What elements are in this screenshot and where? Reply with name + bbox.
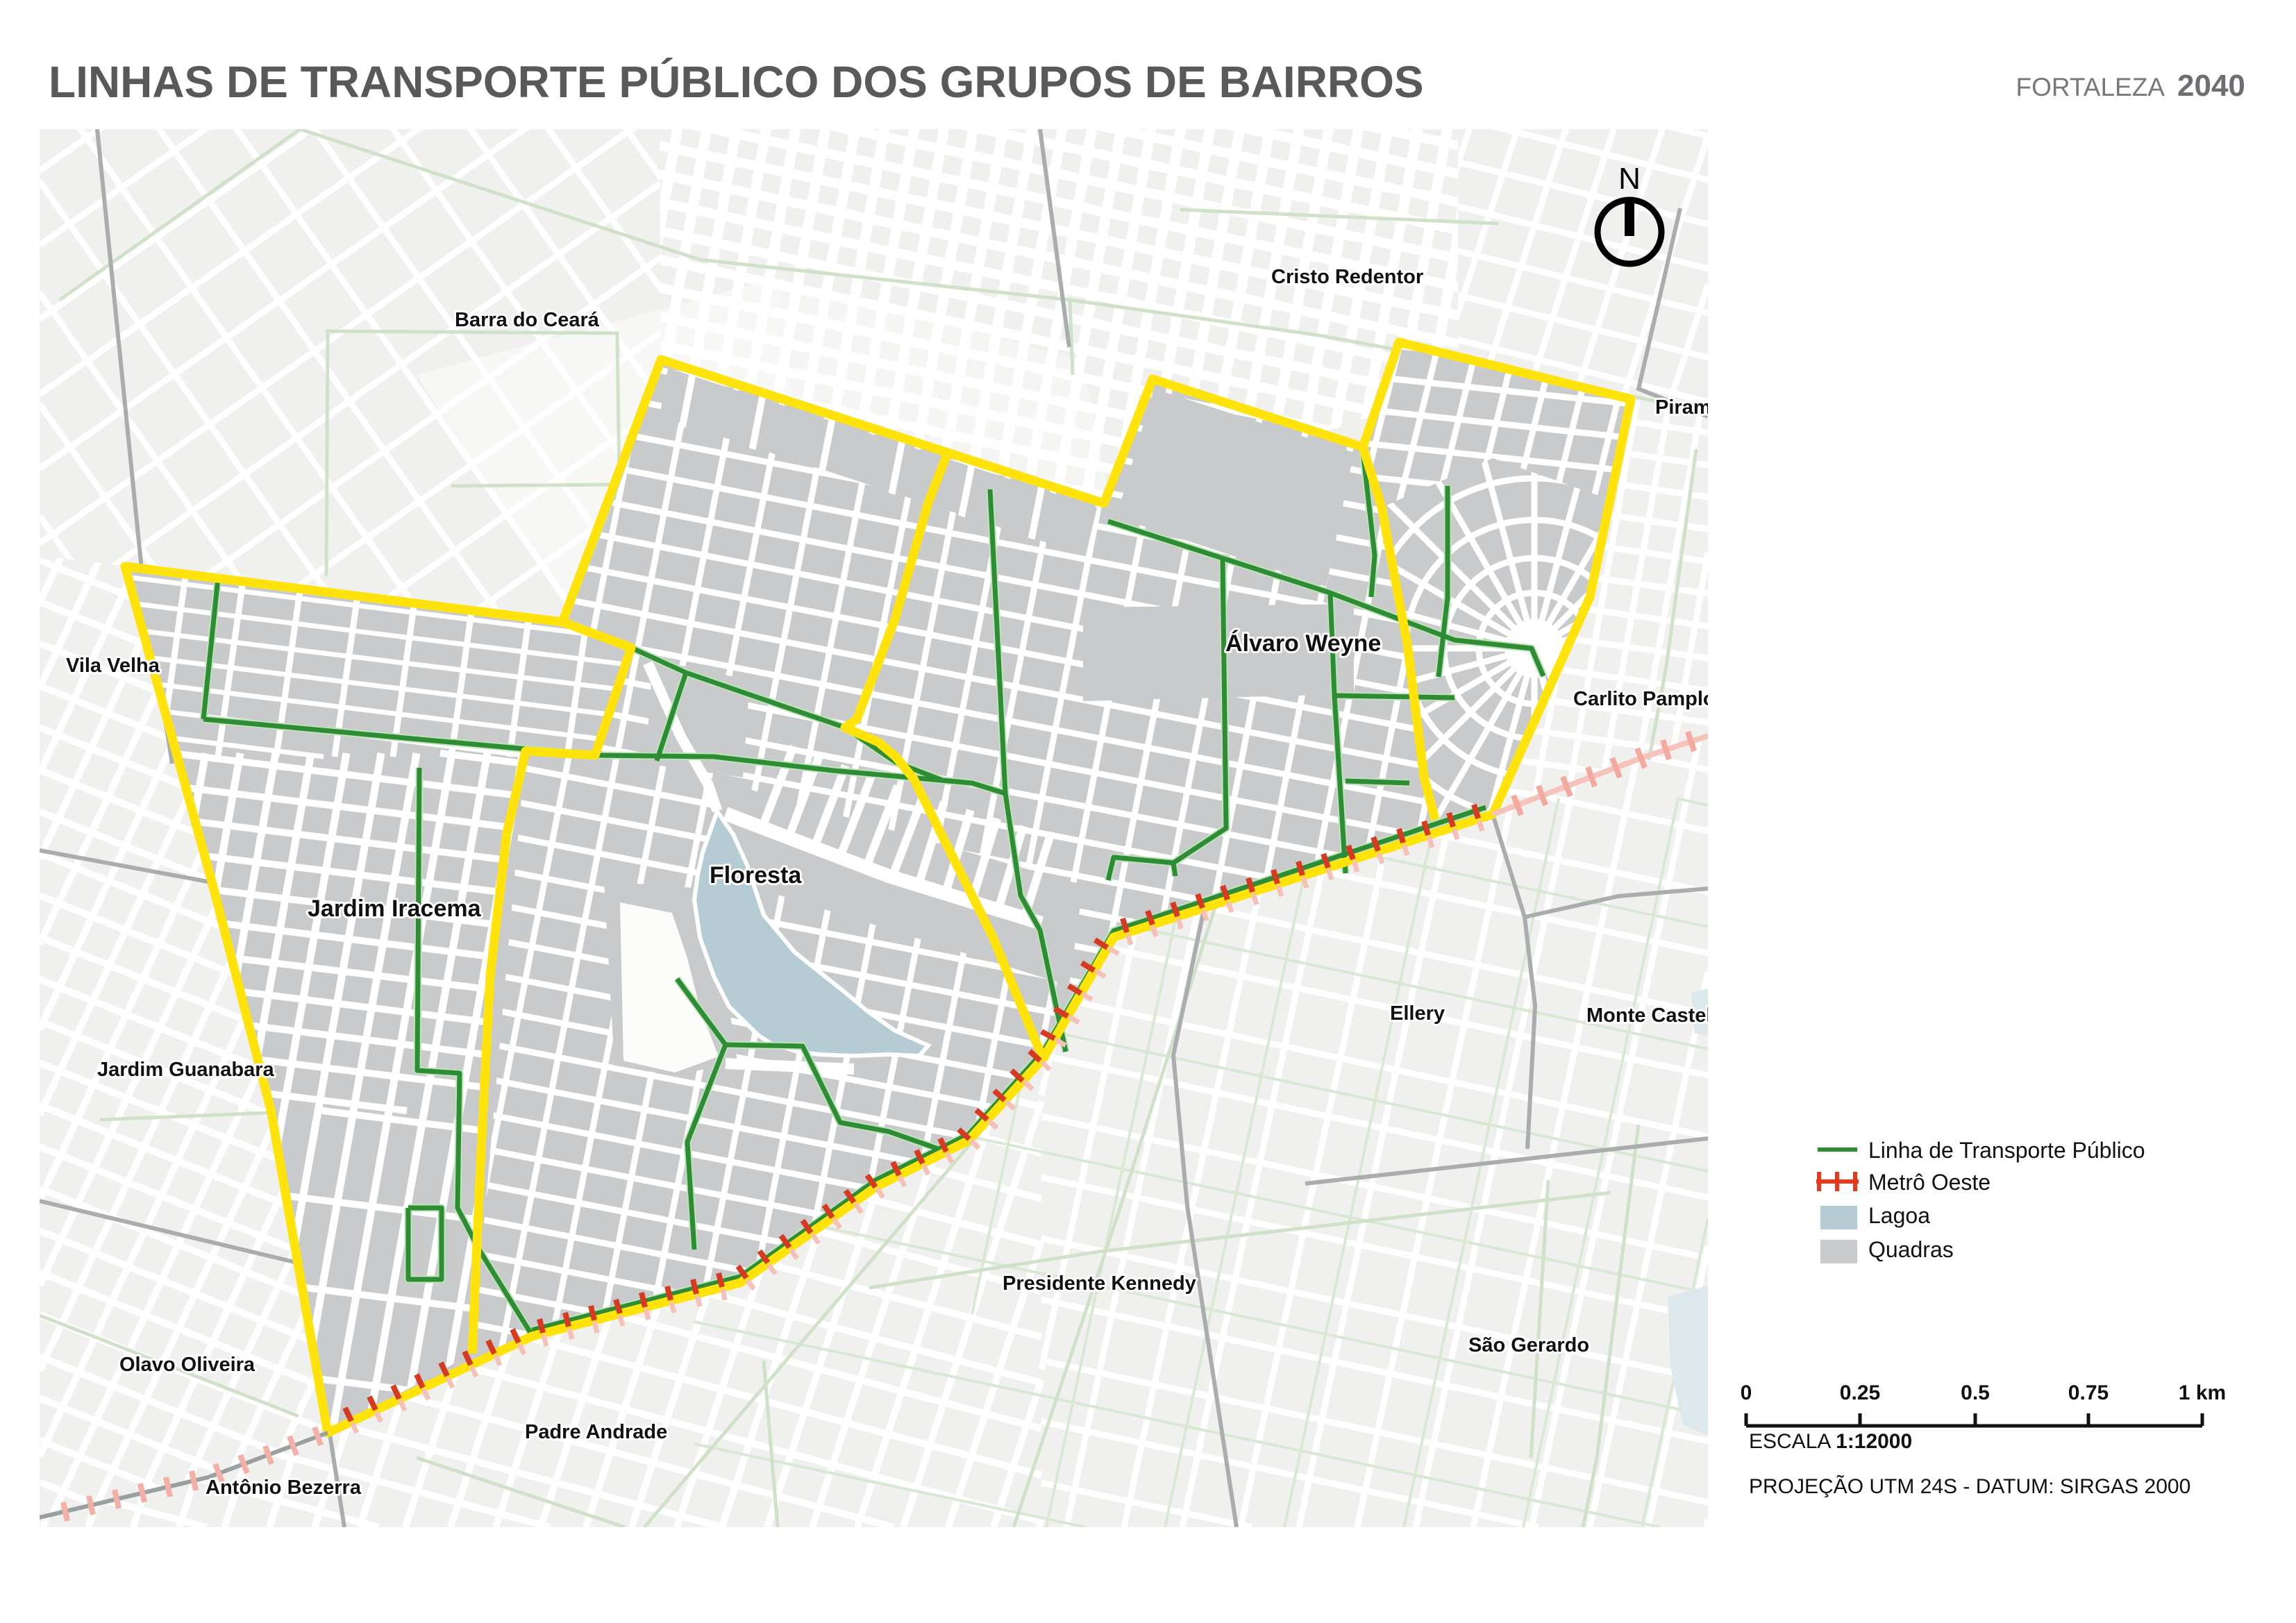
svg-text:LINHAS DE TRANSPORTE PÚBLICO D: LINHAS DE TRANSPORTE PÚBLICO DOS GRUPOS … xyxy=(49,57,1424,107)
svg-text:0.25: 0.25 xyxy=(1840,1381,1880,1404)
svg-text:Floresta: Floresta xyxy=(710,862,802,889)
svg-text:Ellery: Ellery xyxy=(1390,1002,1445,1025)
svg-text:Antônio Bezerra: Antônio Bezerra xyxy=(206,1477,362,1499)
svg-text:Quadras: Quadras xyxy=(1868,1237,1954,1262)
svg-text:São Gerardo: São Gerardo xyxy=(1468,1334,1589,1356)
svg-text:ESCALA 1:12000: ESCALA 1:12000 xyxy=(1749,1430,1912,1453)
svg-text:Monte Castelo: Monte Castelo xyxy=(1586,1004,1724,1027)
svg-text:Vila Velha: Vila Velha xyxy=(66,655,160,677)
svg-text:Olavo Oliveira: Olavo Oliveira xyxy=(119,1354,255,1376)
svg-text:Linha de Transporte Público: Linha de Transporte Público xyxy=(1868,1138,2145,1163)
svg-text:PROJEÇÃO UTM 24S - DATUM: SIRG: PROJEÇÃO UTM 24S - DATUM: SIRGAS 2000 xyxy=(1749,1474,2190,1498)
svg-text:Jardim Iracema: Jardim Iracema xyxy=(308,895,482,922)
svg-text:Metrô Oeste: Metrô Oeste xyxy=(1868,1170,1991,1195)
svg-text:Padre Andrade: Padre Andrade xyxy=(525,1421,667,1443)
svg-text:FORTALEZA: FORTALEZA xyxy=(2016,73,2165,101)
svg-text:Barra do Ceará: Barra do Ceará xyxy=(455,309,600,331)
svg-text:2040: 2040 xyxy=(2177,69,2245,103)
svg-text:Álvaro Weyne: Álvaro Weyne xyxy=(1225,630,1381,657)
svg-text:Jardim Guanabara: Jardim Guanabara xyxy=(97,1059,275,1081)
svg-text:Cristo Redentor: Cristo Redentor xyxy=(1271,266,1423,288)
svg-text:0: 0 xyxy=(1741,1381,1752,1404)
svg-text:Carlito Pamplona: Carlito Pamplona xyxy=(1573,688,1739,710)
svg-text:0.75: 0.75 xyxy=(2068,1381,2109,1404)
svg-text:Lagoa: Lagoa xyxy=(1868,1203,1930,1228)
svg-text:1 km: 1 km xyxy=(2179,1381,2226,1404)
svg-text:0.5: 0.5 xyxy=(1961,1381,1990,1404)
svg-text:Pirambu: Pirambu xyxy=(1655,396,1736,419)
svg-text:N: N xyxy=(1618,162,1641,196)
svg-text:Presidente Kennedy: Presidente Kennedy xyxy=(1003,1272,1196,1295)
